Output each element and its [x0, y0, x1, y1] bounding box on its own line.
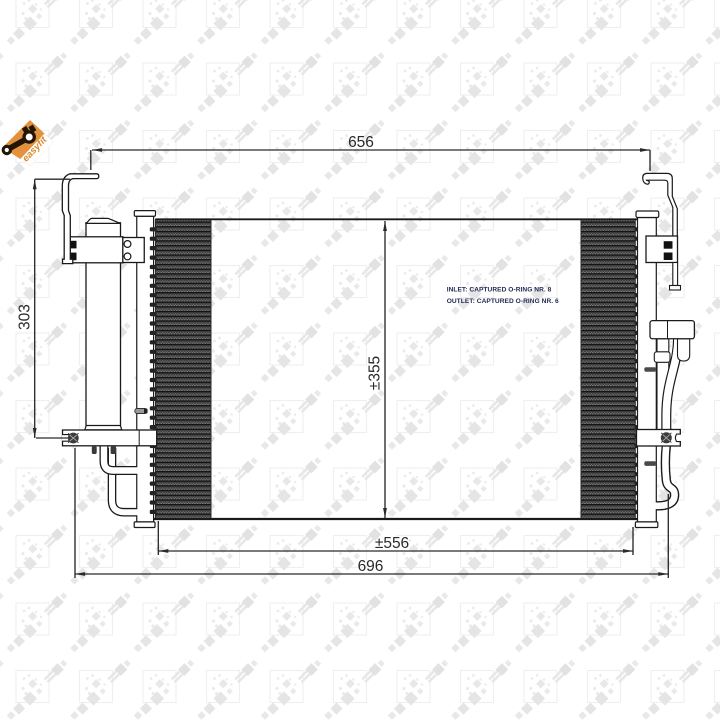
- svg-text:OUTLET: CAPTURED O-RING NR. 6: OUTLET: CAPTURED O-RING NR. 6: [447, 298, 559, 305]
- svg-text:±556: ±556: [375, 535, 409, 552]
- svg-text:656: 656: [348, 134, 374, 151]
- svg-text:±355: ±355: [367, 356, 384, 390]
- svg-text:INLET: CAPTURED O-RING NR. 8: INLET: CAPTURED O-RING NR. 8: [447, 287, 552, 294]
- svg-text:303: 303: [17, 304, 34, 330]
- svg-text:696: 696: [358, 558, 384, 575]
